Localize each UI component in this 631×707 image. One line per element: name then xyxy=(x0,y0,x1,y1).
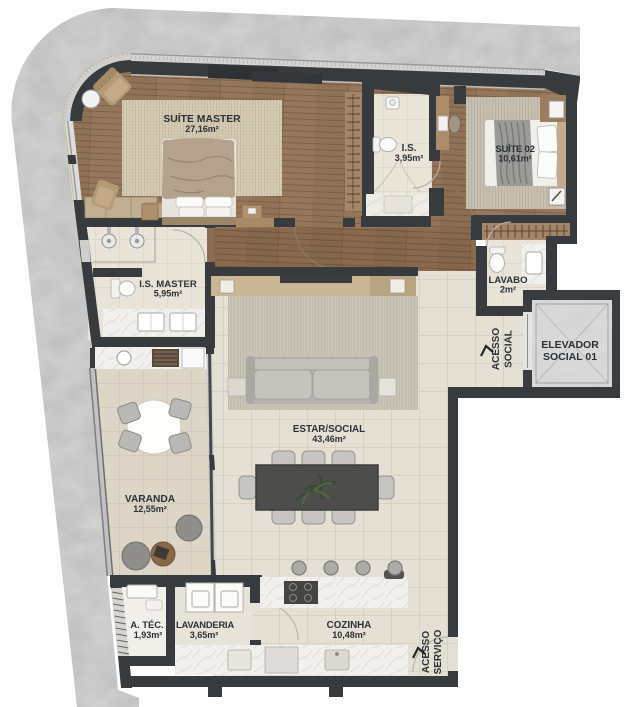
svg-text:SERVIÇO: SERVIÇO xyxy=(433,629,444,674)
svg-text:SOCIAL: SOCIAL xyxy=(504,330,515,368)
svg-text:ELEVADOR: ELEVADOR xyxy=(541,339,599,351)
svg-text:43,46m²: 43,46m² xyxy=(312,434,346,444)
svg-text:3,65m²: 3,65m² xyxy=(190,630,219,640)
svg-text:27,16m²: 27,16m² xyxy=(185,124,219,134)
svg-text:12,55m²: 12,55m² xyxy=(133,504,167,514)
svg-text:ACESSO: ACESSO xyxy=(491,328,502,370)
svg-text:10,61m²: 10,61m² xyxy=(498,154,532,164)
svg-text:5,95m²: 5,95m² xyxy=(154,289,183,299)
svg-text:2m²: 2m² xyxy=(500,285,516,295)
svg-text:SOCIAL 01: SOCIAL 01 xyxy=(543,351,597,363)
svg-text:A. TÉC.: A. TÉC. xyxy=(130,619,163,630)
svg-text:10,48m²: 10,48m² xyxy=(332,630,366,640)
svg-text:1,93m²: 1,93m² xyxy=(134,630,163,640)
svg-text:3,95m²: 3,95m² xyxy=(395,153,424,163)
svg-text:LAVANDERIA: LAVANDERIA xyxy=(176,619,234,630)
